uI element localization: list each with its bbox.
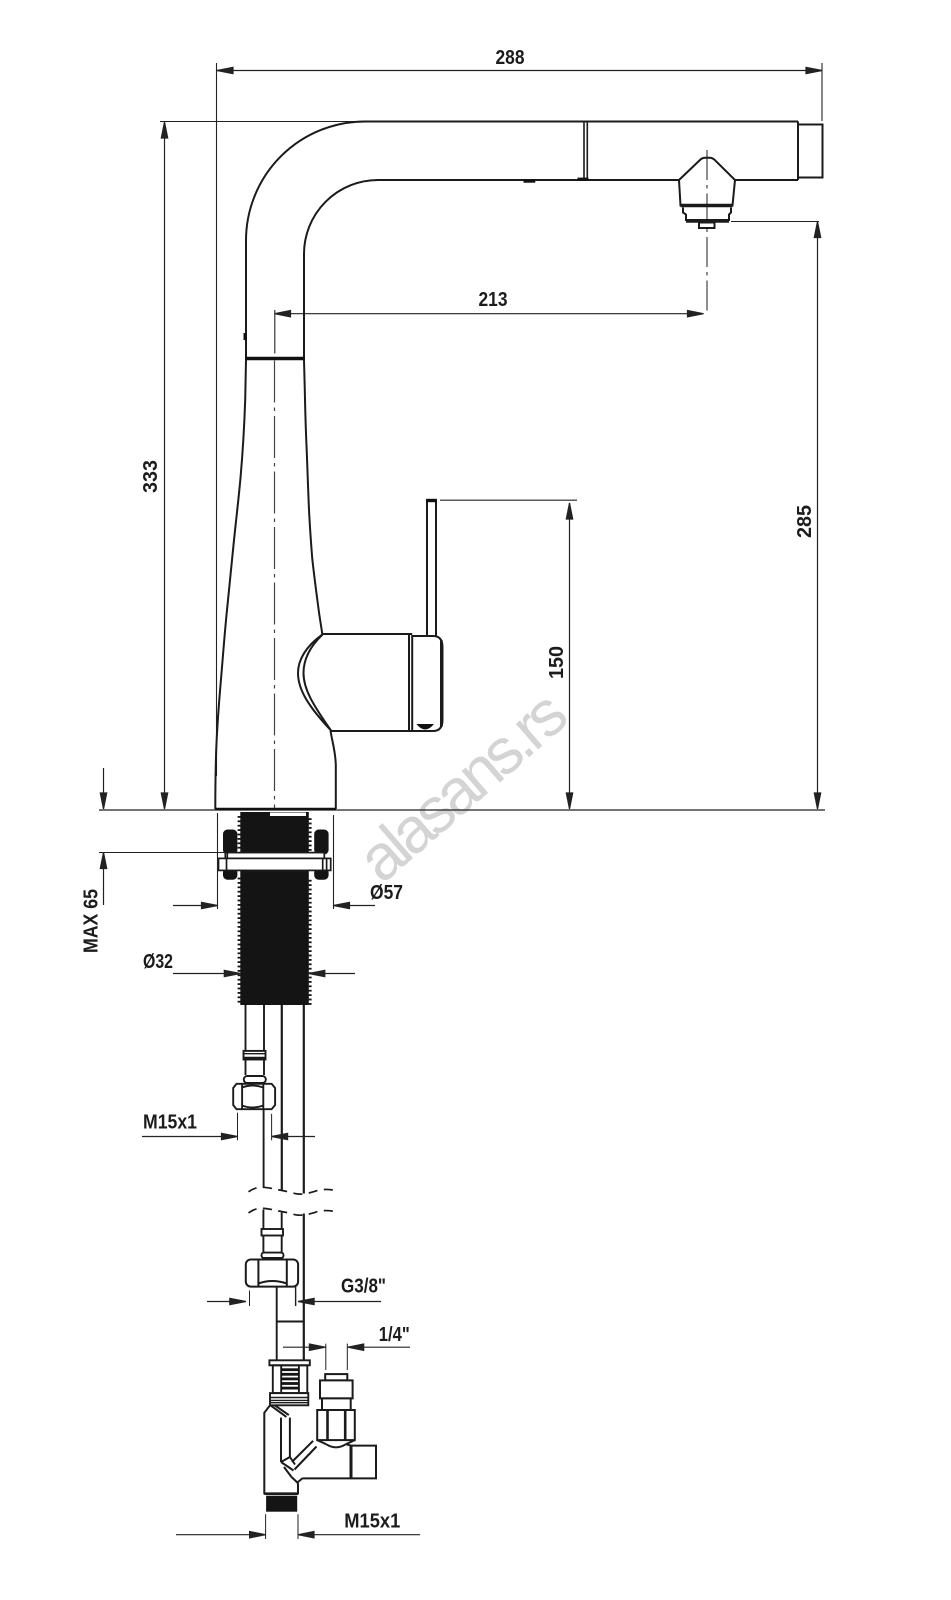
svg-text:Ø32: Ø32 — [143, 951, 173, 973]
svg-text:Ø57: Ø57 — [370, 882, 403, 904]
svg-text:M15x1: M15x1 — [143, 1112, 197, 1134]
svg-text:G3/8": G3/8" — [341, 1276, 386, 1298]
svg-text:285: 285 — [794, 505, 816, 538]
svg-text:150: 150 — [546, 646, 568, 679]
svg-text:333: 333 — [140, 460, 162, 493]
svg-text:M15x1: M15x1 — [344, 1511, 400, 1533]
svg-text:1/4": 1/4" — [379, 1324, 410, 1346]
svg-text:213: 213 — [479, 289, 508, 311]
svg-text:MAX 65: MAX 65 — [81, 889, 103, 953]
svg-text:288: 288 — [496, 47, 525, 69]
